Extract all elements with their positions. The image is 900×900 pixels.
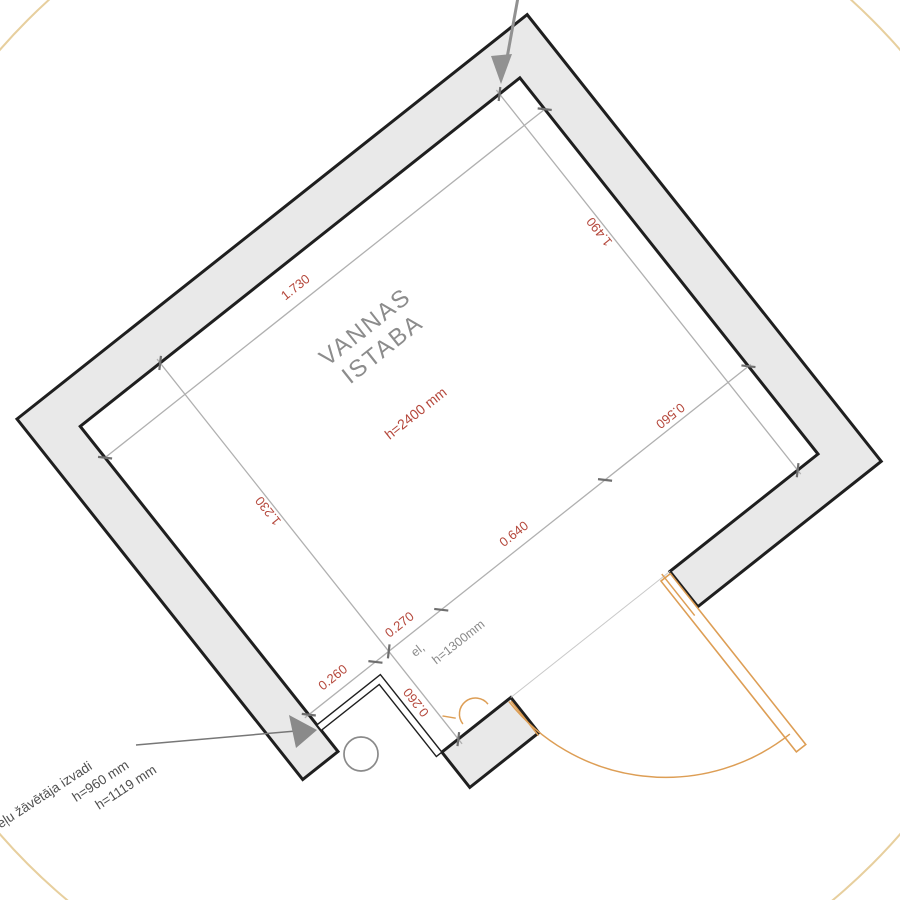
dimension-right-line <box>496 90 800 474</box>
electrical-label-line2: h=1300mm <box>429 617 487 667</box>
pipe-circle-symbol <box>344 737 378 771</box>
dim-label-chain-seg1: 0.260 <box>315 661 350 693</box>
floorplan-canvas: 1.730 0.560 0.640 0.270 0.260 1.490 1.23… <box>0 0 900 900</box>
door-threshold-line <box>511 571 670 697</box>
door-swing-arc <box>509 577 790 858</box>
note-text-block: dvieļu žāvētāja izvadi h=960 mm h=1119 m… <box>0 730 159 872</box>
dimension-ticks <box>73 71 825 810</box>
dimension-tick <box>434 603 448 617</box>
dim-label-chain-seg4: 0.560 <box>653 400 688 432</box>
floorplan-drawing: 1.730 0.560 0.640 0.270 0.260 1.490 1.23… <box>0 0 900 900</box>
dimension-top-line <box>105 109 545 457</box>
dimension-tick <box>598 473 612 487</box>
step-wall-block <box>442 698 539 788</box>
ceiling-height-label: h=2400 mm <box>381 384 449 443</box>
wall-outline <box>17 15 881 866</box>
dimension-tick <box>382 644 396 658</box>
dimension-chain-line <box>305 364 751 717</box>
dimension-tick <box>368 655 382 669</box>
dim-label-chain-seg3: 0.640 <box>496 518 531 550</box>
electrical-label-line1: el, <box>408 640 427 659</box>
dim-label-top-width: 1.730 <box>278 271 313 303</box>
dim-label-chain-seg2: 0.270 <box>382 608 417 640</box>
